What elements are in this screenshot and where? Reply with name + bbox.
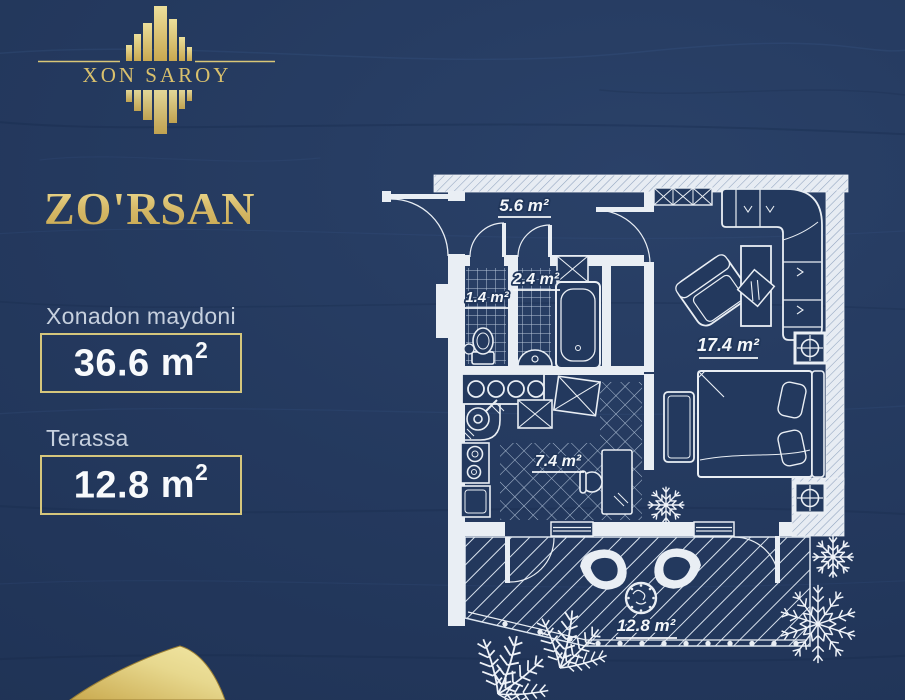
- living-area-label: 17.4 m²: [697, 335, 760, 355]
- living-bedroom-furniture: [648, 188, 825, 523]
- bedroom-plant: [648, 487, 685, 524]
- wc-corner-sink: [464, 344, 474, 354]
- wall-pilaster: [436, 284, 449, 338]
- wall-kitchen-living: [644, 374, 654, 470]
- coffee-table: [738, 246, 775, 326]
- column-symbol-living: [795, 333, 825, 363]
- bathtub: [556, 282, 600, 368]
- washer-dryer-stack: [461, 443, 489, 483]
- floorplan: 5.6 m² 1.4 m² 2.4 m² 17.4 m² 7.4 m² 12.8…: [0, 0, 905, 700]
- wall-hall-living: [644, 262, 654, 372]
- poster: XON SAROY ZO'RSAN Xonadon maydoni 36.6 m…: [0, 0, 905, 700]
- desk-chair: [580, 471, 602, 493]
- entry-door: [382, 191, 448, 256]
- wall-bottom: [592, 522, 694, 536]
- window-bedroom: [694, 522, 734, 536]
- toilet: [472, 328, 494, 364]
- terrace-table: [626, 583, 656, 613]
- terrace-area-plan-label: 12.8 m²: [617, 616, 677, 635]
- wardrobe: [654, 188, 712, 205]
- fridge: [461, 486, 490, 517]
- wall-right: [826, 190, 844, 485]
- kitchen-island-box: [554, 376, 600, 416]
- hallway-area-label: 5.6 m²: [499, 196, 549, 215]
- corner-sofa: [722, 189, 822, 340]
- kitchen-counter: [462, 400, 504, 440]
- column-symbol-corner: [795, 483, 825, 513]
- kitchen-area-label: 7.4 m²: [535, 453, 582, 470]
- gold-leaf-decoration: [70, 646, 225, 700]
- bedroom-bench: [664, 392, 694, 462]
- desk: [602, 450, 632, 514]
- kitchen-sink-cabinet: [518, 400, 552, 428]
- bathroom-door: [518, 225, 552, 257]
- window-kitchen: [551, 522, 593, 536]
- wc-area-label: 1.4 m²: [465, 289, 509, 306]
- bathroom-area-label: 2.4 m²: [512, 271, 560, 288]
- wc-door: [470, 223, 506, 257]
- bed: [698, 371, 824, 477]
- washing-machine: [557, 256, 588, 282]
